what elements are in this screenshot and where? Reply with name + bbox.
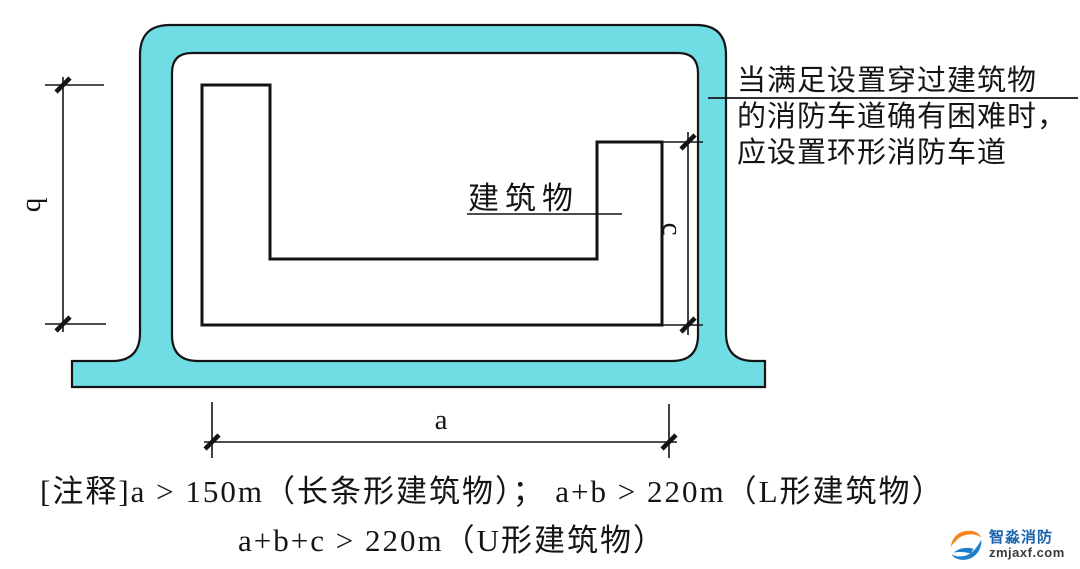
note-line-2: a+b+c > 220m（U形建筑物） xyxy=(238,515,666,560)
dim-a-label: a xyxy=(426,404,456,437)
fire-lane-diagram: 建筑物 a b c 当满足设置穿过建筑物 的消防车道确有困难时， 应设置环形消防… xyxy=(0,0,1080,569)
annotation-line-1: 当满足设置穿过建筑物 xyxy=(737,63,1080,99)
building-label: 建筑物 xyxy=(468,173,579,218)
annotation-text: 当满足设置穿过建筑物 的消防车道确有困难时， 应设置环形消防车道 xyxy=(737,63,1080,171)
dim-b-label: b xyxy=(22,188,52,222)
building-outline xyxy=(202,85,662,325)
dim-b-lines xyxy=(45,77,106,332)
annotation-line-2: 的消防车道确有困难时， xyxy=(737,99,1080,135)
annotation-line-3: 应设置环形消防车道 xyxy=(737,135,1080,171)
logo-domain: zmjaxf.com xyxy=(989,546,1065,560)
logo-name: 智淼消防 xyxy=(989,530,1065,546)
dim-c-label: c xyxy=(658,212,688,246)
logo: 智淼消防 zmjaxf.com xyxy=(948,524,1078,566)
note-line-1: [注释]a > 150m（长条形建筑物）； a+b > 220m（L形建筑物） xyxy=(40,466,945,511)
logo-swirl-icon xyxy=(948,527,984,563)
